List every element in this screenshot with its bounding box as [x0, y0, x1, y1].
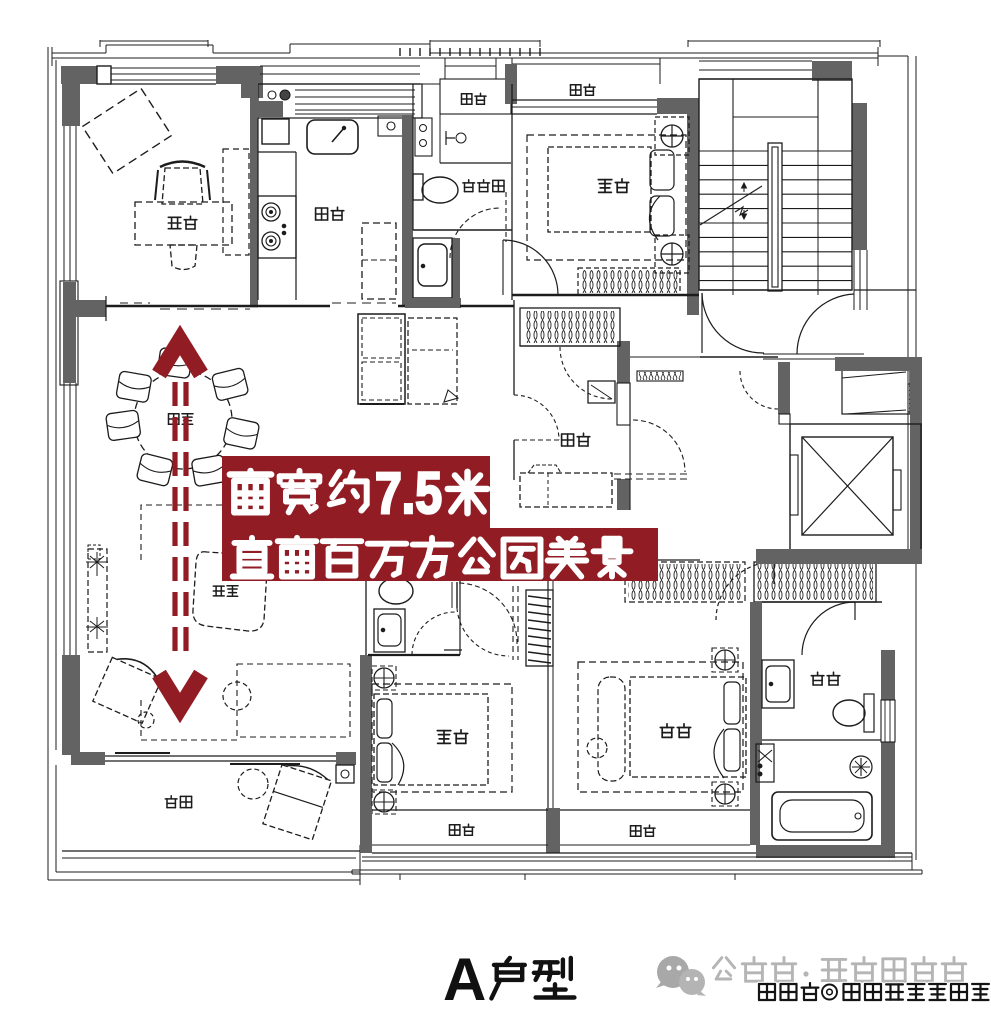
svg-text:7.5: 7.5 [375, 461, 442, 526]
svg-text:A: A [443, 946, 486, 1013]
